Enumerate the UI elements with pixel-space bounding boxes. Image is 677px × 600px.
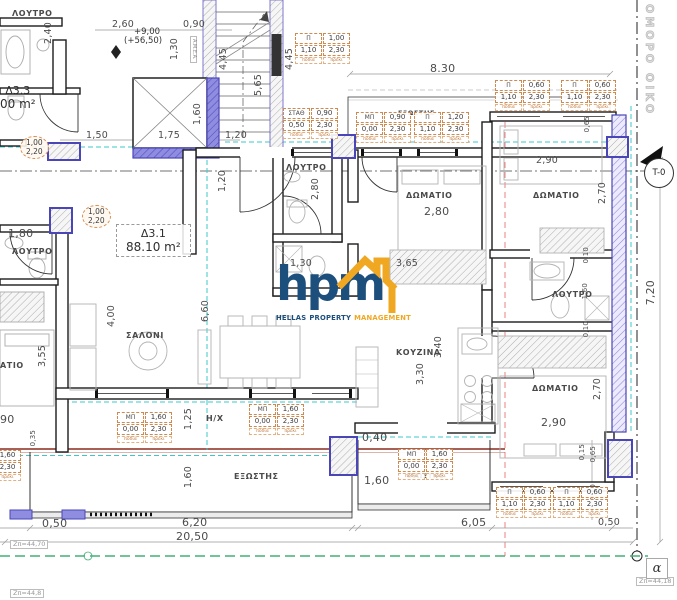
hpm-logo: hpm HELLAS PROPERTY MANAGEMENT <box>276 263 396 322</box>
window-sill: 0,50 <box>283 120 310 131</box>
dimension-label: 0,65 <box>584 116 591 132</box>
window-height: 2,30 <box>524 499 551 510</box>
window-height: 2,30 <box>589 92 616 103</box>
window-height: 2,30 <box>323 45 350 56</box>
room-label: ΑΤΙΟ <box>0 362 24 370</box>
tag-sub-label: πρέκι <box>323 57 350 64</box>
window-tag: Π0,601,102,30ποδιάπρέκι <box>561 80 616 111</box>
window-tag: ΜΠ1,600,002,30ποδιάπρέκι <box>249 404 304 435</box>
window-type: ΜΠ <box>249 404 276 415</box>
amea-label: A.M.E.A. <box>190 36 197 63</box>
tag-sub-label: ποδιά <box>414 136 441 143</box>
dimension-label: 2,70 <box>598 182 608 204</box>
tag-sub-label: ποδιά <box>356 136 383 143</box>
apartment-label: Δ3.188.10 m² <box>116 224 191 257</box>
dimension-label: 4,00 <box>107 305 117 327</box>
window-height: 2,30 <box>581 499 608 510</box>
dimension-label: 2,40 <box>44 22 54 44</box>
window-width: 0,60 <box>581 487 608 498</box>
tag-sub-label: πρέκι <box>442 136 469 143</box>
logo-house-icon <box>336 253 398 317</box>
tag-sub-label: πρέκι <box>581 511 608 518</box>
alpha-marker-label: α <box>653 561 662 576</box>
dimension-label: 1,80 <box>8 228 33 239</box>
window-height: 2,30 <box>0 462 21 473</box>
window-tag: ΜΠ0,900,002,30ποδιάπρέκι <box>356 112 411 143</box>
window-tag: Π0,601,102,30ποδιάπρέκι <box>553 487 608 518</box>
room-label: ΔΩΜΑΤΙΟ <box>533 192 580 200</box>
window-height: 2,30 <box>384 124 411 135</box>
dimension-label: 1,60 <box>193 103 203 125</box>
window-type: Π <box>561 80 588 91</box>
dimension-label: 3,55 <box>38 345 48 367</box>
room-label: ΛΟΥΤΡΟ <box>286 164 327 172</box>
window-type: Π <box>553 487 580 498</box>
apartment-id: Δ3.1 <box>126 227 181 240</box>
window-height: 2,30 <box>442 124 469 135</box>
dimension-label: 6,05 <box>461 517 486 528</box>
apartment-label: Δ3.300 m² <box>0 84 36 111</box>
tag-sub-label: πρέκι <box>311 132 338 139</box>
tag-sub-label: ποδιά <box>561 104 588 111</box>
dimension-label: 2,80 <box>311 178 321 200</box>
window-width: 1,60 <box>0 450 21 461</box>
apartment-area: 00 m² <box>0 97 36 111</box>
window-width: 1,60 <box>277 404 304 415</box>
dimension-label: 2,70 <box>593 378 603 400</box>
window-width: 0,90 <box>384 112 411 123</box>
window-sill: 1,10 <box>495 92 522 103</box>
dimension-label: 8.30 <box>430 63 455 74</box>
window-type: Π <box>496 487 523 498</box>
dimension-label: 0,65 <box>590 446 597 462</box>
window-sill: 1,10 <box>553 499 580 510</box>
window-sill: 1,10 <box>295 45 322 56</box>
tag-sub-label: πρέκι <box>589 104 616 111</box>
level-annotation: Zπ=44,8 <box>10 589 44 598</box>
dimension-label: 7,20 <box>645 280 656 305</box>
window-sill: 1,10 <box>496 499 523 510</box>
tag-sub-label: ποδιά <box>295 57 322 64</box>
dimension-label: 0,50 <box>42 518 67 529</box>
grid-marker-t0: T-0 <box>644 158 674 188</box>
dimension-label: 6,60 <box>201 300 211 322</box>
logo-tagline-hellas: HELLAS <box>276 314 306 322</box>
tag-sub-label: ποδιά <box>553 511 580 518</box>
window-sill: 0,00 <box>249 416 276 427</box>
window-tag: Π1,001,102,30ποδιάπρέκι <box>295 33 350 64</box>
tag-sub-label: πρέκι <box>524 511 551 518</box>
window-width: 0,90 <box>311 108 338 119</box>
window-width: 1,60 <box>426 449 453 460</box>
window-height: 2,30 <box>426 461 453 472</box>
room-label: ΣΑΛΟΝΙ <box>126 332 164 340</box>
room-label: ΔΩΜΑΤΙΟ <box>406 192 453 200</box>
dimension-label: 2,80 <box>424 206 449 217</box>
window-height: 2,30 <box>523 92 550 103</box>
tag-sub-label: πρέκι <box>523 104 550 111</box>
window-sill: 1,10 <box>414 124 441 135</box>
alpha-marker: α <box>646 558 668 579</box>
tag-sub-label: ποδιά <box>495 104 522 111</box>
window-height: 2,30 <box>277 416 304 427</box>
dimension-label: 1,60 <box>364 475 389 486</box>
dimension-label: 0,15 <box>579 444 586 460</box>
window-tag: ΣΤΑΘ0,900,502,30ποδιάπρέκι <box>283 108 338 139</box>
level-annotation: Zπ=44,70 <box>10 540 48 549</box>
window-sill: 0,00 <box>356 124 383 135</box>
window-height: 2,30 <box>311 120 338 131</box>
dimension-label: 4,45 <box>285 48 295 70</box>
dimension-label: 0,35 <box>30 430 37 446</box>
apartment-id: Δ3.3 <box>0 84 36 97</box>
floor-plan-canvas: 2,600,901,302,404,454,455,651,601,501,75… <box>0 0 677 600</box>
window-width: 0,60 <box>523 80 550 91</box>
window-tag: Π0,601,102,30ποδιάπρέκι <box>495 80 550 111</box>
dimension-label: 1,30 <box>170 38 180 60</box>
tag-sub-label: ποδιά <box>283 132 310 139</box>
window-tag: ΜΠ1,600,002,30ποδιάπρέκι <box>117 412 172 443</box>
grid-marker-label: T-0 <box>653 168 666 178</box>
elevation-note: (+56,50) <box>124 37 162 46</box>
room-label: ΚΟΥΖΙΝΑ <box>396 349 441 357</box>
tag-sub-label: πρέκι <box>277 428 304 435</box>
window-sill: 1,10 <box>561 92 588 103</box>
window-type: Π <box>295 33 322 44</box>
apartment-area: 88.10 m² <box>126 240 181 254</box>
tag-sub-label: ποδιά <box>496 511 523 518</box>
door-height: 2,20 <box>26 148 43 157</box>
window-tag: ΜΠ1,600,002,30ποδιάπρέκι <box>0 450 21 481</box>
door-height: 2,20 <box>88 217 105 226</box>
dimension-label: 0,10 <box>583 247 590 263</box>
dimension-label: 6,20 <box>182 517 207 528</box>
dimension-label: 2,90 <box>541 417 566 428</box>
dimension-label: 0,40 <box>362 432 387 443</box>
window-width: 0,60 <box>589 80 616 91</box>
window-sill: 0,00 <box>398 461 425 472</box>
dimension-label: 3,65 <box>396 259 418 269</box>
dimension-label: 0,90 <box>183 20 205 30</box>
dimension-label: 20,50 <box>176 531 209 542</box>
dimension-label: 1,50 <box>86 131 108 141</box>
dimension-label: 90 <box>0 414 14 425</box>
dimension-label: 2,60 <box>112 20 134 30</box>
dimension-label: 2,90 <box>536 156 558 166</box>
window-width: 1,60 <box>145 412 172 423</box>
tag-sub-label: ποδιά <box>398 473 425 480</box>
adjacent-plot-label: ΟΜΟΡΟ ΟΙΚΟ <box>644 4 655 116</box>
window-tag: Π0,601,102,30ποδιάπρέκι <box>496 487 551 518</box>
window-type: ΜΠ <box>117 412 144 423</box>
room-label: ΔΩΜΑΤΙΟ <box>532 385 579 393</box>
tag-sub-label: πρέκι <box>426 473 453 480</box>
tag-sub-label: πρέκι <box>0 474 21 481</box>
window-type: ΜΠ <box>356 112 383 123</box>
room-label: ΛΟΥΤΡΟ <box>552 291 593 299</box>
dimension-label: 1,20 <box>225 131 247 141</box>
room-label: ΕΞΩΣΤΗΣ <box>234 473 279 481</box>
dimension-label: 0,10 <box>583 321 590 337</box>
window-height: 2,30 <box>145 424 172 435</box>
dimension-label: 4,45 <box>219 48 229 70</box>
dimension-label: 1,75 <box>158 131 180 141</box>
window-type: Π <box>495 80 522 91</box>
dimension-label: 0,50 <box>598 518 620 528</box>
dimension-label: 3,30 <box>416 363 426 385</box>
room-label: ΛΟΥΤΡΟ <box>12 248 53 256</box>
tag-sub-label: πρέκι <box>384 136 411 143</box>
dimension-label: 5,65 <box>254 74 264 96</box>
dimension-label: 1,60 <box>184 466 194 488</box>
window-type: ΣΤΑΘ <box>283 108 310 119</box>
window-width: 1,00 <box>323 33 350 44</box>
door-tag: 1,002,20 <box>82 205 111 228</box>
room-label: Η/Χ <box>206 415 224 423</box>
tag-sub-label: ποδιά <box>117 436 144 443</box>
window-width: 0,60 <box>524 487 551 498</box>
window-type: Π <box>414 112 441 123</box>
window-sill: 0,00 <box>117 424 144 435</box>
window-tag: ΜΠ1,600,002,30ποδιάπρέκι <box>398 449 453 480</box>
door-tag: 1,002,20 <box>20 136 49 159</box>
window-width: 1,20 <box>442 112 469 123</box>
window-tag: Π1,201,102,30ποδιάπρέκι <box>414 112 469 143</box>
room-label: ΛΟΥΤΡΟ <box>12 10 53 18</box>
logo-word-row: hpm <box>276 263 396 311</box>
tag-sub-label: ποδιά <box>249 428 276 435</box>
dimension-label: 1,20 <box>218 170 228 192</box>
tag-sub-label: πρέκι <box>145 436 172 443</box>
dimension-label: 1,25 <box>184 408 194 430</box>
window-type: ΜΠ <box>398 449 425 460</box>
